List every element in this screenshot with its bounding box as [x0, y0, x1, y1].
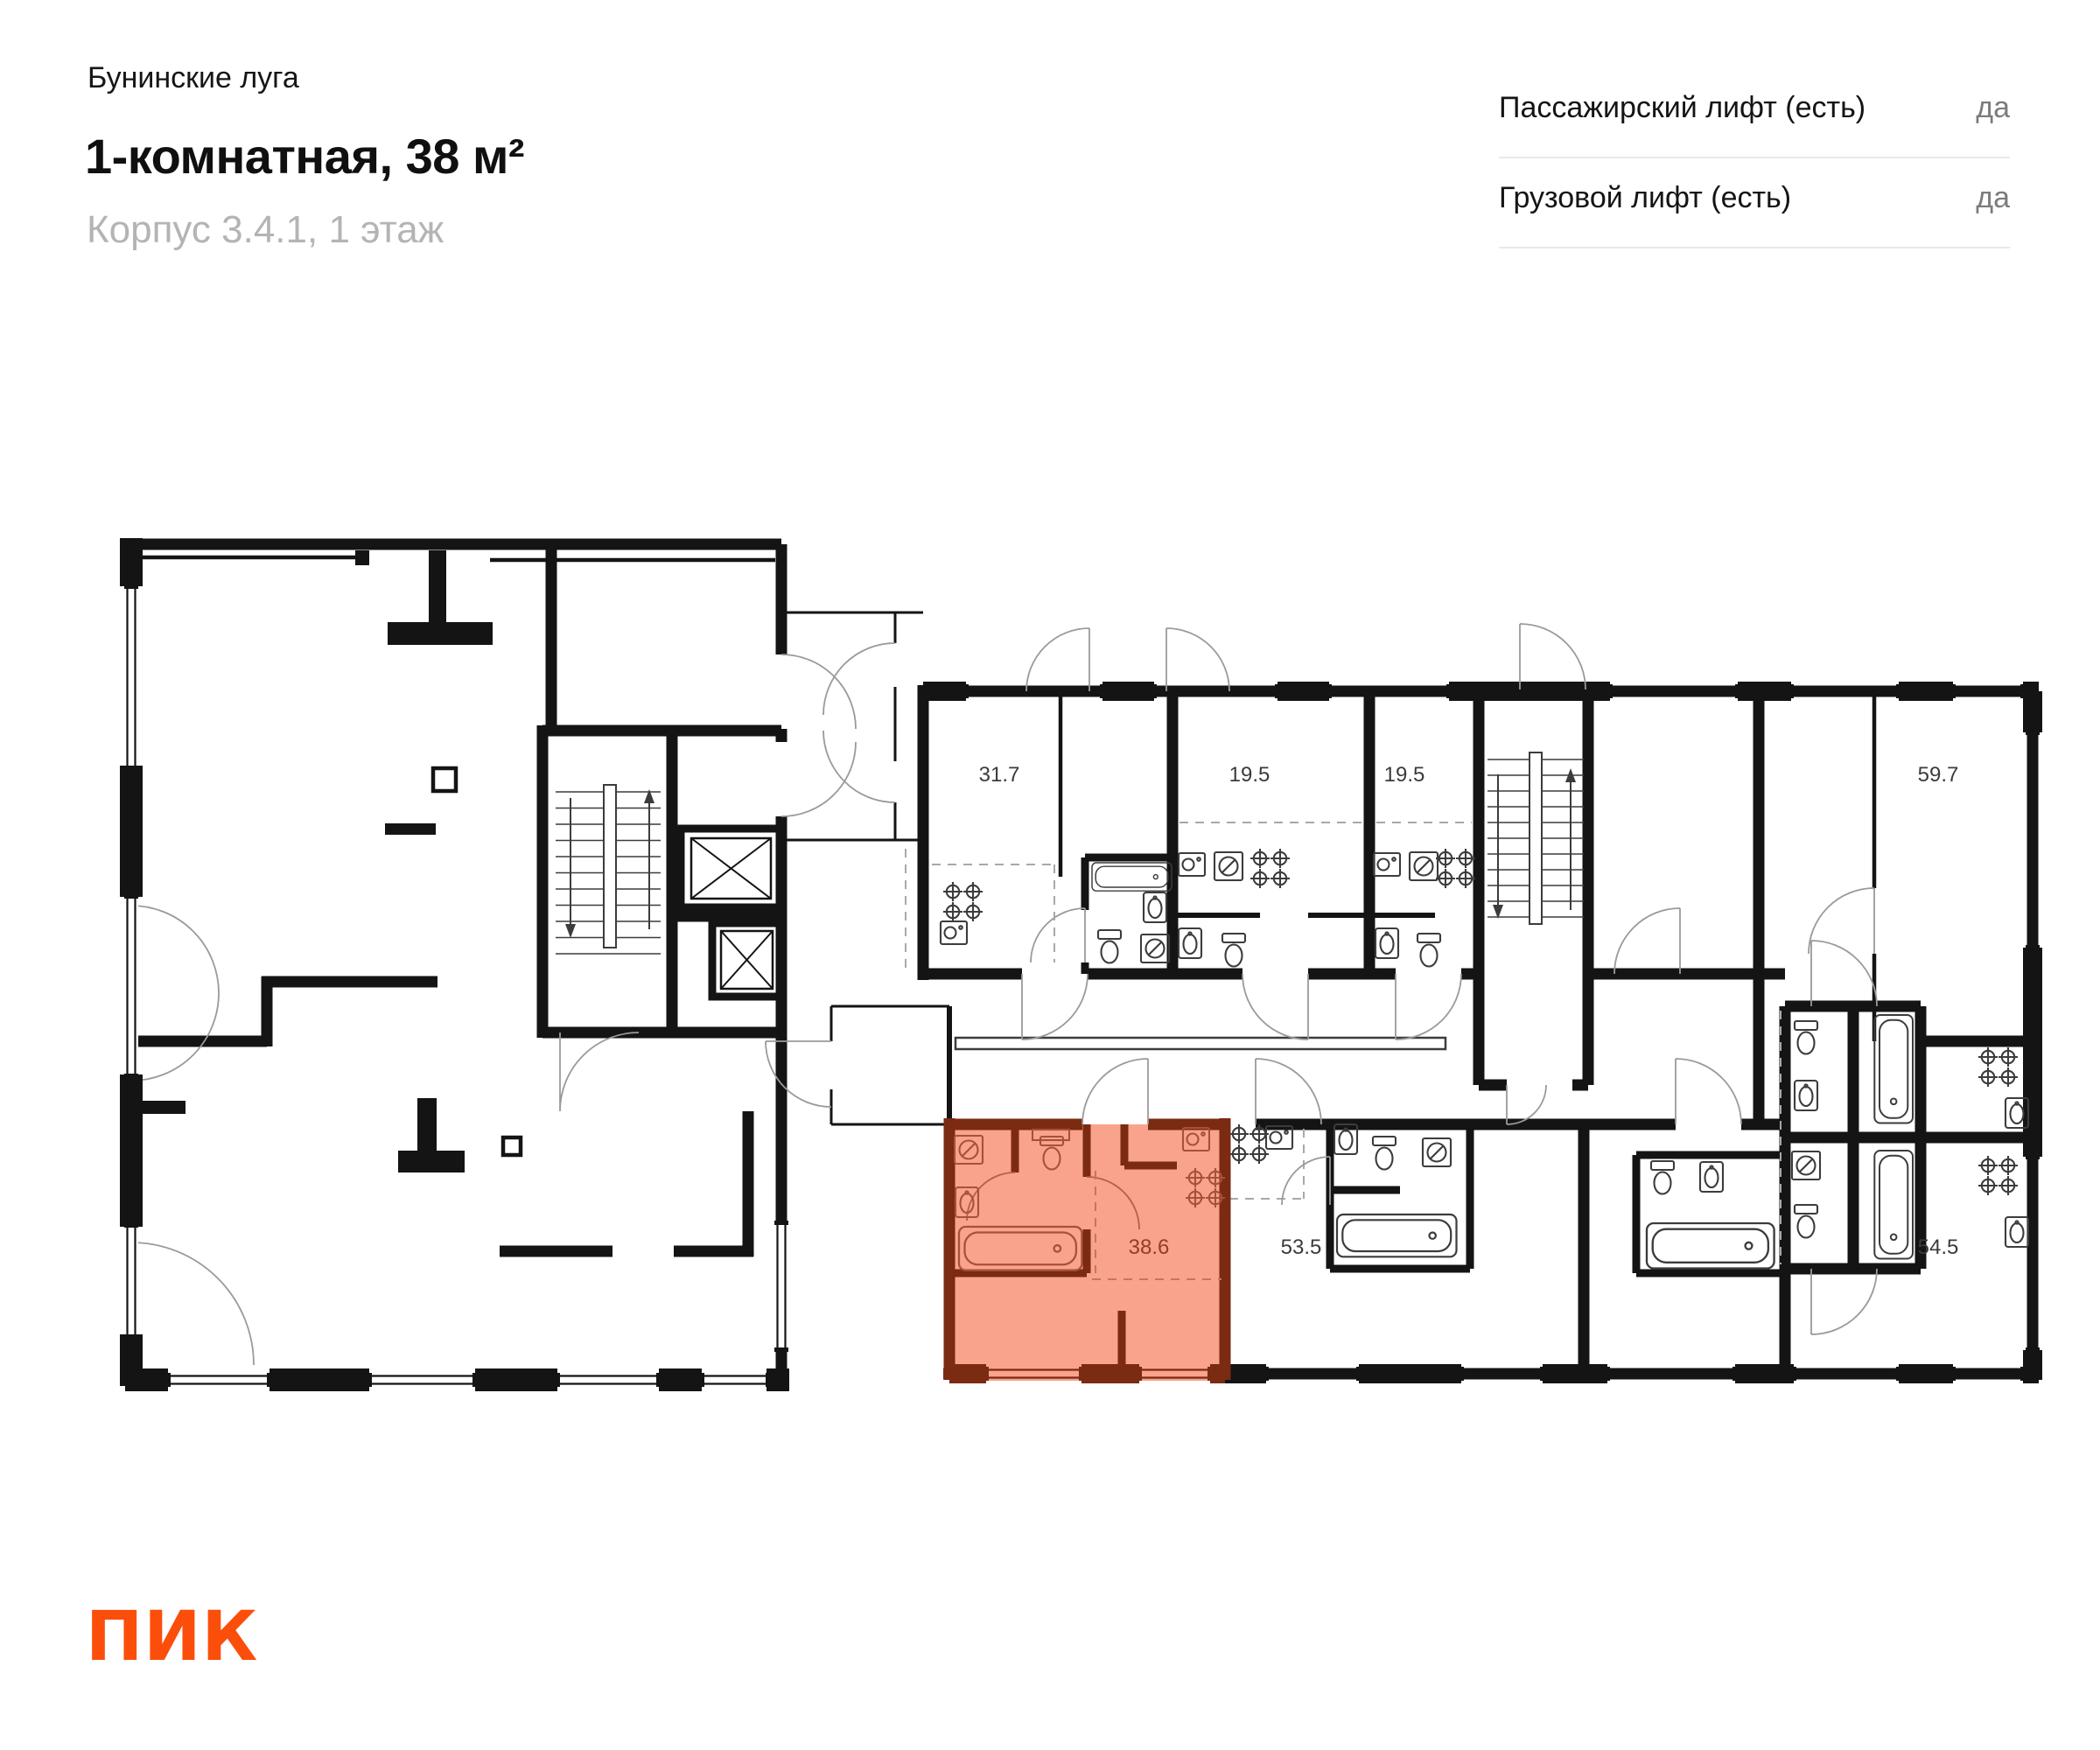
highlighted-unit-38.6[interactable]: [943, 1059, 1228, 1383]
floor-plan: 31.7 19.5 19.5 59.7 38.6 53.5 54.5: [0, 0, 2100, 1750]
unit-area-label: 19.5: [1384, 763, 1425, 787]
elevator-shaft-icon: [712, 923, 780, 997]
elevator-shaft-icon: [681, 829, 780, 907]
stair-arrow-down-icon: [565, 924, 576, 938]
unit-area-label: 19.5: [1229, 763, 1270, 787]
unit-area-label: 31.7: [979, 763, 1020, 787]
unit-area-label: 53.5: [1281, 1235, 1322, 1259]
left-building: [125, 538, 856, 1386]
pik-logo[interactable]: ПИК: [86, 1598, 258, 1676]
unit-area-label-highlighted: 38.6: [1129, 1235, 1170, 1259]
unit-area-label: 54.5: [1918, 1235, 1959, 1259]
unit-area-label: 59.7: [1918, 763, 1959, 787]
